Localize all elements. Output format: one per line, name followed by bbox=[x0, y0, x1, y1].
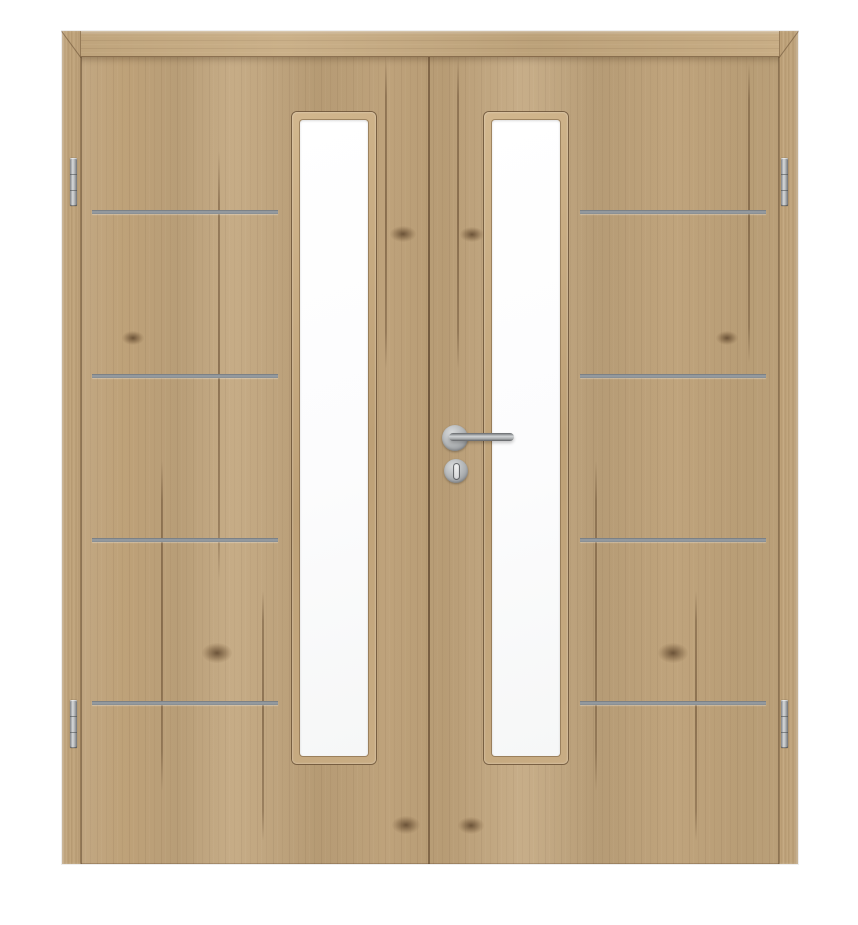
hinge bbox=[781, 158, 788, 206]
inlay-strip bbox=[580, 374, 766, 378]
keyhole-cylinder bbox=[454, 464, 459, 479]
wood-knot bbox=[658, 643, 688, 663]
grain-line bbox=[262, 591, 264, 841]
grain-line bbox=[385, 59, 387, 369]
double-door bbox=[62, 31, 798, 864]
product-image-stage bbox=[0, 0, 858, 925]
glass-pane bbox=[300, 120, 368, 756]
hinge-knuckle-line bbox=[70, 732, 77, 733]
wood-knot bbox=[122, 331, 144, 345]
hinge-knuckle-line bbox=[70, 190, 77, 191]
wood-knot bbox=[392, 816, 420, 834]
hinge bbox=[781, 700, 788, 748]
hinge-knuckle-line bbox=[70, 716, 77, 717]
grain-line bbox=[595, 461, 597, 791]
wood-knot bbox=[390, 226, 416, 242]
wood-knot bbox=[458, 817, 484, 834]
hinge-knuckle-line bbox=[781, 174, 788, 175]
inlay-strip bbox=[92, 210, 278, 214]
inlay-strip bbox=[580, 210, 766, 214]
hinge-knuckle-line bbox=[70, 174, 77, 175]
wood-knot bbox=[716, 331, 738, 345]
inlay-strip bbox=[580, 701, 766, 705]
hinge bbox=[70, 158, 77, 206]
grain-line bbox=[457, 59, 459, 369]
door-leaves bbox=[81, 57, 779, 864]
handle-lever bbox=[449, 433, 514, 441]
inlay-strip bbox=[580, 538, 766, 542]
hinge-knuckle-line bbox=[781, 190, 788, 191]
inlay-strip bbox=[92, 701, 278, 705]
door-frame-head bbox=[62, 31, 798, 57]
hinge-knuckle-line bbox=[781, 716, 788, 717]
glass-cutout bbox=[292, 112, 376, 764]
grain-line bbox=[161, 461, 163, 791]
grain-line bbox=[218, 151, 220, 581]
leaf-meeting-gap bbox=[428, 57, 430, 864]
hinge bbox=[70, 700, 77, 748]
wood-knot bbox=[202, 643, 232, 663]
wood-knot bbox=[460, 227, 484, 242]
inlay-strip bbox=[92, 538, 278, 542]
grain-line bbox=[695, 591, 697, 841]
hinge-knuckle-line bbox=[781, 732, 788, 733]
inlay-strip bbox=[92, 374, 278, 378]
